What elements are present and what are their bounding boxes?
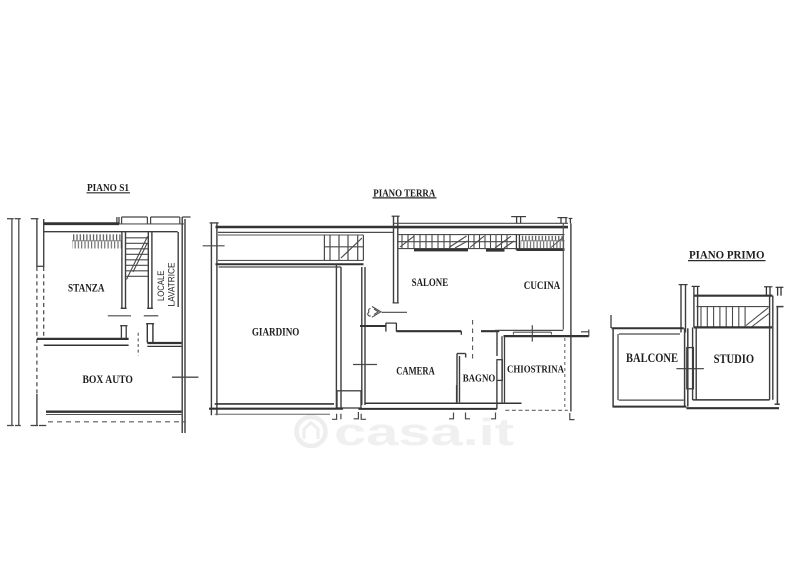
svg-text:GIARDINO: GIARDINO [252, 324, 300, 338]
svg-text:PIANO PRIMO: PIANO PRIMO [689, 248, 765, 262]
svg-text:BOX AUTO: BOX AUTO [82, 372, 133, 386]
svg-text:STUDIO: STUDIO [714, 351, 755, 366]
svg-text:BAGNO: BAGNO [463, 373, 496, 385]
svg-text:CUCINA: CUCINA [524, 278, 561, 292]
svg-text:LAVATRICE: LAVATRICE [167, 263, 177, 307]
svg-text:STANZA: STANZA [68, 280, 105, 294]
svg-text:SALONE: SALONE [412, 275, 449, 289]
svg-text:BALCONE: BALCONE [626, 350, 678, 365]
svg-text:CAMERA: CAMERA [396, 363, 435, 377]
svg-text:CHIOSTRINA: CHIOSTRINA [507, 364, 564, 376]
svg-text:LOCALE: LOCALE [156, 271, 166, 302]
